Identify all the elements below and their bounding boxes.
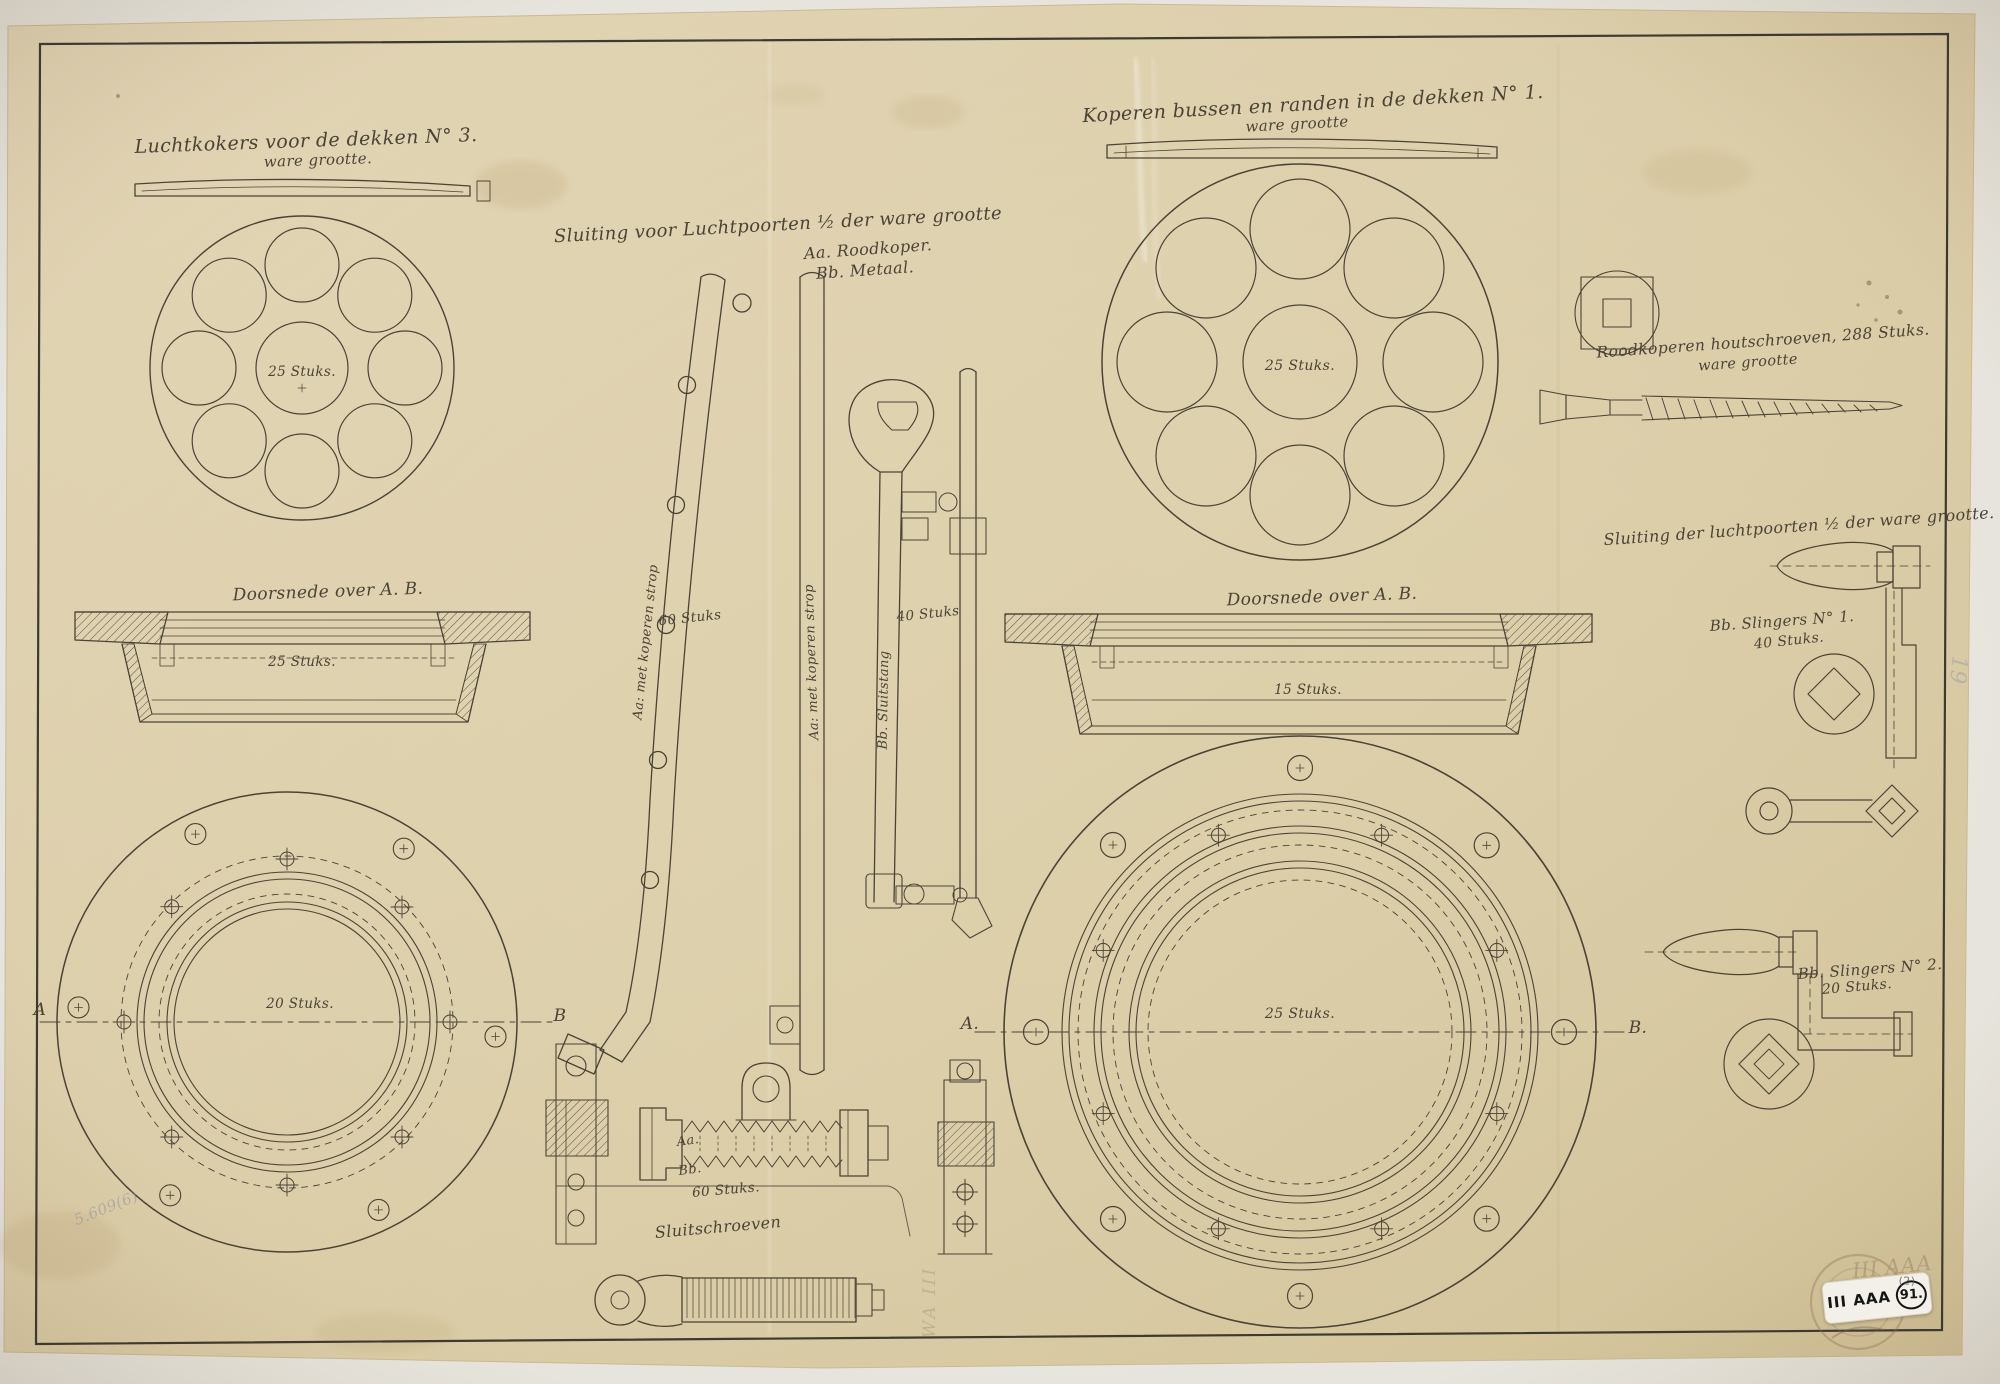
qty-top-right-disc: 25 Stuks. (1265, 358, 1335, 374)
marker-right-b: B. (1629, 1018, 1648, 1038)
qty-right-section: 15 Stuks. (1274, 682, 1342, 698)
qty-right-flange: 25 Stuks. (1265, 1006, 1335, 1022)
marker-right-a: A. (961, 1014, 979, 1034)
archive-sticker-code: III AAA (1826, 1288, 1891, 1313)
assembly-part-a: Aa. (676, 1132, 700, 1150)
archive-sticker-index: (2) (1899, 1275, 1916, 1288)
qty-top-left-disc: 25 Stuks. (268, 364, 336, 380)
pencil-note-right-edge: 19 (1944, 655, 1971, 686)
qty-left-flange: 20 Stuks. (266, 996, 334, 1012)
pencil-note-center: WA III (920, 1266, 940, 1338)
title-top-left-scale: ware grootte. (264, 149, 373, 171)
qty-left-section: 25 Stuks. (268, 654, 336, 670)
marker-left-a: A (34, 1000, 47, 1020)
scanned-technical-drawing: Luchtkokers voor de dekken N° 3. ware gr… (0, 0, 2000, 1384)
assembly-part-b: Bb. (677, 1161, 702, 1179)
name-lock-rod: Bb. Sluitstang (876, 650, 893, 749)
marker-left-b: B (554, 1006, 567, 1026)
